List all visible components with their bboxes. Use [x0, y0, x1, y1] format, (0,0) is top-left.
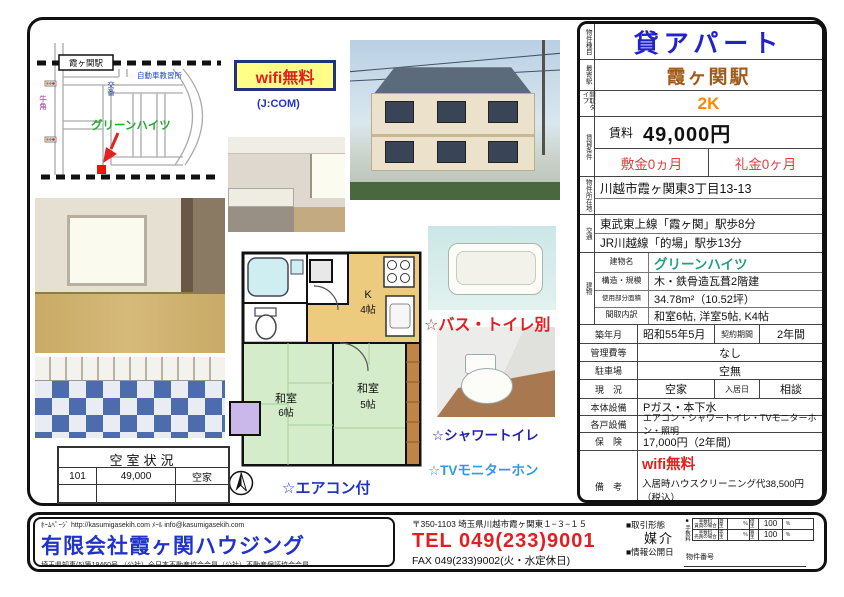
vacancy-row: [59, 485, 228, 502]
photo-exterior: [350, 40, 560, 200]
gyukaku-label: 牛角: [38, 94, 47, 112]
photo-tatami-room: [35, 198, 225, 353]
row-built: 築年月 昭和55年5月 契約期間 2年間: [580, 325, 822, 344]
photo-kitchen: [228, 137, 345, 232]
fee-tenant-percent: 100: [759, 519, 783, 529]
company-box: ﾎｰﾑﾍﾟｰｼﾞ http://kasumigasekih.com ﾒｰﾙ in…: [33, 517, 395, 567]
bathtub-symbol: [248, 258, 288, 296]
vacancy-rent: 49,000: [97, 468, 176, 484]
room2-label: 和室: [357, 381, 379, 395]
room-window: [67, 215, 147, 286]
tatami-floor: [35, 294, 225, 353]
address-blank-line: [595, 199, 822, 214]
rent-amount: 49,000円: [643, 118, 731, 147]
vacancy-title: 空室状況: [59, 448, 228, 468]
caption-shower-toilet: ☆シャワートイレ: [432, 424, 539, 444]
toilet-symbol: [256, 315, 276, 339]
key-money: 礼金0ヶ月: [708, 149, 822, 176]
structure: 木・鉄骨造瓦葺2階建: [649, 273, 822, 290]
photo-bath: [428, 226, 556, 310]
property-type: 貸アパート: [595, 24, 822, 59]
notes-wifi: wifi無料: [642, 453, 818, 474]
location-arrow: [111, 133, 118, 149]
traffic-signal-icon: [45, 137, 56, 142]
label-contract: 契約期間: [714, 325, 760, 343]
closet-box: [230, 402, 260, 435]
label-mgmt-fee: 管理費等: [580, 344, 638, 361]
info-date-label: ■情報公開日: [626, 546, 674, 558]
row-parking: 駐車場 空無: [580, 362, 822, 380]
vacancy-row: 101 49,000 空家: [59, 468, 228, 485]
mgmt-fee: なし: [638, 344, 822, 361]
label-rooms: 間取内訳: [595, 308, 649, 325]
built-date: 昭和55年5月: [638, 325, 714, 343]
deposit: 敷金0ヵ月: [595, 149, 708, 176]
label-address: 物件所在地: [580, 177, 595, 214]
fee-table: ■ 手数料 手数料賃貸の場合 貸主 ％ 借主 100 ％ 手数料売買の場合 売主…: [682, 518, 814, 541]
location-arrowhead: [103, 147, 117, 163]
row-notes: 備 考 wifi無料 入居時ハウスクリーニング代38,500円（税込） 原則保証…: [580, 451, 822, 503]
access-line-1: 東武東上線「霞ヶ関」駅歩8分: [595, 215, 822, 234]
movein-date: 相談: [760, 380, 822, 398]
label-layout: 間取タイプ: [580, 91, 595, 116]
deal-type: 媒介: [644, 528, 674, 547]
room2-size: 5帖: [360, 398, 376, 411]
room-breakdown: 和室6帖, 洋室5帖, K4帖: [649, 308, 822, 325]
wifi-free-badge: wifi無料: [234, 60, 336, 91]
label-building: 建物: [580, 253, 595, 324]
label-parking: 駐車場: [580, 362, 638, 379]
label-equipment: 各戸設備: [580, 416, 638, 432]
floorplan: K 4帖 和室 6帖 和室 5帖: [228, 240, 424, 468]
kitchen-window: [310, 154, 345, 198]
label-movein: 入居日: [714, 380, 760, 398]
phone-number: TEL 049(233)9001: [412, 530, 642, 553]
company-address: 〒350-1103 埼玉県川越市霞ヶ関東１−３−１５: [412, 518, 642, 530]
fee-label: 手数料: [684, 525, 690, 542]
label-access: 交通: [580, 215, 595, 252]
unit-equipment: エアコン・シャワートイレ・TVモニターホン・照明: [638, 416, 822, 432]
row-status: 現 況 空家 入居日 相談: [580, 380, 822, 399]
fee-buyer-percent: 100: [759, 530, 783, 540]
room1-label: 和室: [275, 391, 297, 405]
company-homepage: ﾎｰﾑﾍﾟｰｼﾞ http://kasumigasekih.com ﾒｰﾙ in…: [41, 520, 387, 530]
kitchen-counter: [228, 188, 294, 207]
row-property-type: 物件種目 貸アパート: [580, 24, 822, 60]
row-address: 物件所在地 川越市霞ヶ関東3丁目13-13: [580, 177, 822, 215]
floor-area: 34.78m²（10.52坪）: [649, 291, 822, 307]
row-mgmt: 管理費等 なし: [580, 344, 822, 362]
veranda-strip: [406, 343, 420, 465]
vacancy-room: 101: [59, 468, 97, 484]
label-utilities: 本体設備: [580, 399, 638, 415]
utility-pole: [542, 40, 545, 155]
label-structure: 構造・規模: [595, 273, 649, 290]
shoji-screen: [35, 357, 225, 381]
property-number-label: 物件番号: [686, 552, 714, 562]
kitchen-size: 4帖: [360, 303, 376, 316]
caption-aircon: ☆エアコン付: [282, 477, 370, 498]
map-building-label: グリーンハイツ: [91, 118, 171, 132]
vacancy-table: 空室状況 101 49,000 空家: [57, 446, 230, 504]
fax-number: FAX 049(233)9002(火・水定休日): [412, 553, 642, 568]
footer-bar: ﾎｰﾑﾍﾟｰｼﾞ http://kasumigasekih.com ﾒｰﾙ in…: [27, 512, 827, 572]
caption-bath-toilet-separate: ☆バス・トイレ別: [424, 311, 550, 335]
notes-cleaning: 入居時ハウスクリーニング代38,500円（税込）: [642, 476, 818, 503]
row-access: 交通 東武東上線「霞ヶ関」駅歩8分 JR川越線「的場」駅歩13分: [580, 215, 822, 253]
label-station: 最寄駅: [580, 60, 595, 90]
current-status: 空家: [638, 380, 714, 398]
layout-type: 2K: [595, 91, 822, 116]
caption-tv-monitor: ☆TVモニターホン: [428, 459, 538, 479]
access-map: 霞ヶ関駅 自動車教習所 交番 牛角 グリーンハイツ: [33, 25, 225, 195]
wifi-free-text: wifi無料: [256, 64, 315, 88]
checkered-floor: [35, 381, 225, 438]
driving-school-label: 自動車教習所: [137, 70, 182, 80]
row-layout: 間取タイプ 2K: [580, 91, 822, 117]
room-door: [193, 198, 225, 294]
label-terms: 賃貸条件: [580, 117, 595, 176]
property-address: 川越市霞ヶ関東3丁目13-13: [595, 177, 822, 199]
label-area: 使用部分面積: [595, 291, 649, 307]
property-detail-panel: 物件種目 貸アパート 最寄駅 霞ヶ関駅 間取タイプ 2K 賃貸条件 賃料 49,…: [577, 21, 825, 503]
label-notes: 備 考: [580, 451, 638, 503]
room1-size: 6帖: [278, 406, 294, 419]
photo-checkered-room: [35, 357, 225, 438]
deposit-keymoney-row: 敷金0ヵ月 礼金0ヶ月: [595, 149, 822, 176]
contact-block: 〒350-1103 埼玉県川越市霞ヶ関東１−３−１５ TEL 049(233)9…: [412, 518, 642, 568]
property-number-line: [684, 566, 806, 567]
compass-icon: [228, 470, 254, 496]
contract-term: 2年間: [760, 325, 822, 343]
building-name: グリーンハイツ: [649, 253, 822, 272]
label-insurance: 保 険: [580, 433, 638, 450]
station-label: 霞ヶ関駅: [69, 58, 104, 68]
flyer-page: 霞ヶ関駅 自動車教習所 交番 牛角 グリーンハイツ wifi無料 (J:COM): [0, 0, 844, 597]
building-wall: [371, 93, 535, 171]
row-equipment: 各戸設備 エアコン・シャワートイレ・TVモニターホン・照明: [580, 416, 822, 433]
jcom-note: (J:COM): [257, 98, 300, 110]
access-line-2: JR川越線「的場」駅歩13分: [595, 234, 822, 252]
photo-toilet: [437, 327, 555, 417]
label-built: 築年月: [580, 325, 638, 343]
company-name: 有限会社霞ヶ関ハウジング: [41, 530, 387, 560]
police-box-label: 交番: [106, 80, 115, 98]
hedge: [350, 182, 560, 200]
label-status: 現 況: [580, 380, 638, 398]
toilet-bowl: [461, 368, 513, 404]
insurance: 17,000円（2年間）: [638, 433, 822, 450]
nearest-station: 霞ヶ関駅: [595, 60, 822, 90]
row-building: 建物 建物名 グリーンハイツ 構造・規模 木・鉄骨造瓦葺2階建 使用部分面積 3…: [580, 253, 822, 325]
location-marker: [97, 165, 106, 174]
balcony-rail: [372, 134, 534, 137]
vacancy-status: 空家: [176, 468, 228, 484]
traffic-signal-icon: [45, 81, 56, 86]
row-station: 最寄駅 霞ヶ関駅: [580, 60, 822, 91]
rent-row: 賃料 49,000円: [595, 117, 822, 149]
row-insurance: 保 険 17,000円（2年間）: [580, 433, 822, 451]
label-building-name: 建物名: [595, 253, 649, 272]
row-terms: 賃貸条件 賃料 49,000円 敷金0ヵ月 礼金0ヶ月: [580, 117, 822, 177]
parking: 空無: [638, 362, 822, 379]
entrance-closet: [310, 260, 332, 282]
kitchen-label: K: [364, 289, 372, 301]
rent-label: 賃料: [609, 124, 633, 141]
company-license: 埼玉県知事(5)第19460号 （公社）全日本不動産協会会員（公社）不動産保証協…: [41, 560, 387, 567]
label-property-type: 物件種目: [580, 24, 595, 59]
